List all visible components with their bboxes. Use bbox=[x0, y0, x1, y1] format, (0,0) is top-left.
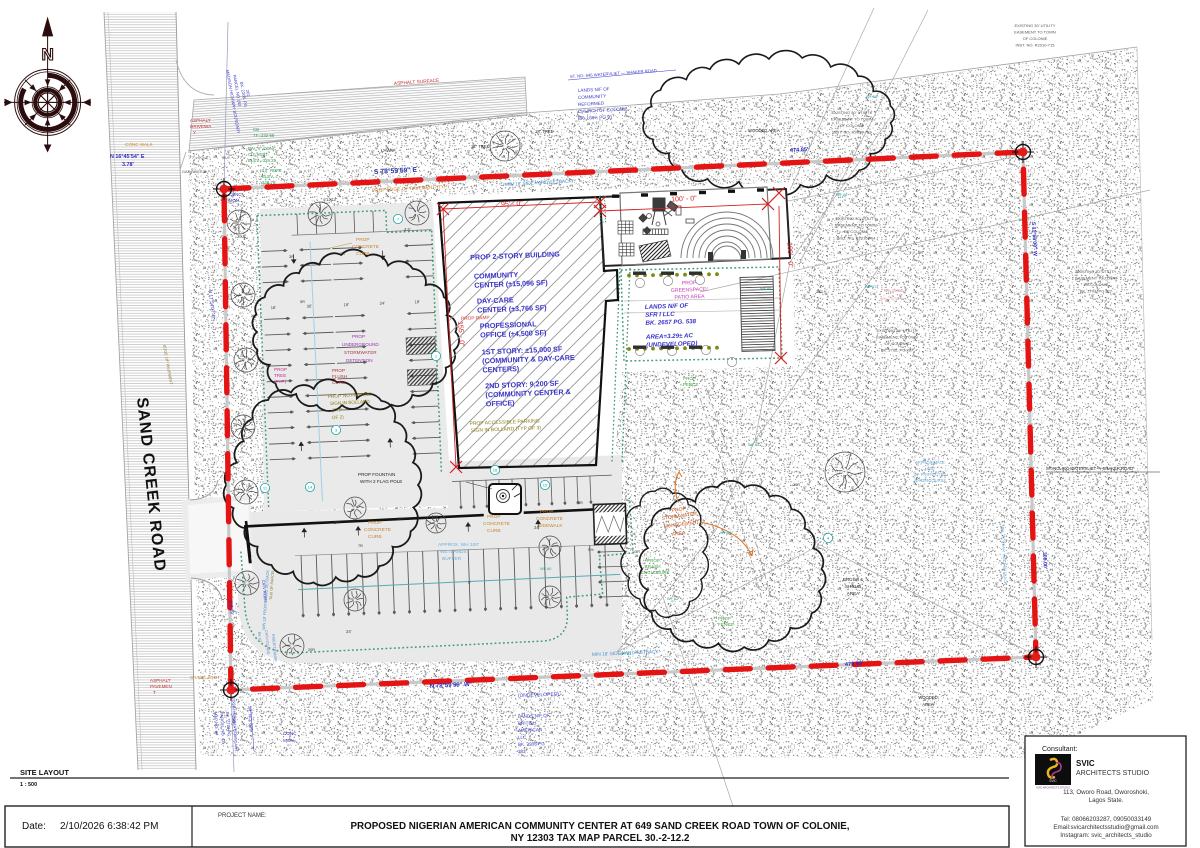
svg-text:NY 12303 TAX MAP PARCEL 30.-2-: NY 12303 TAX MAP PARCEL 30.-2-12.2 bbox=[511, 833, 690, 844]
svg-text:381: 381 bbox=[518, 749, 526, 754]
svg-text:WF A2: WF A2 bbox=[667, 597, 678, 601]
svg-text:EASEMENT TO TOWN: EASEMENT TO TOWN bbox=[876, 335, 918, 340]
svg-text:ELEV. =: ELEV. = bbox=[262, 174, 278, 179]
svg-text:TREE: TREE bbox=[274, 373, 286, 378]
svg-text:20R: 20R bbox=[793, 483, 800, 487]
svg-text:ELEV.=326.25: ELEV.=326.25 bbox=[248, 158, 277, 163]
svg-text:2/10/2026 6:38:42 PM: 2/10/2026 6:38:42 PM bbox=[60, 821, 158, 832]
svg-text:INST. NO. R2010-715: INST. NO. R2010-715 bbox=[1016, 43, 1056, 48]
svg-text:CONCRETE: CONCRETE bbox=[352, 244, 379, 250]
svg-text:WF A7: WF A7 bbox=[865, 285, 876, 289]
svg-text:PROP: PROP bbox=[540, 509, 554, 515]
svg-text:WOODED: WOODED bbox=[918, 695, 937, 700]
svg-text:BRITISH: BRITISH bbox=[518, 720, 536, 726]
svg-text:3R: 3R bbox=[635, 550, 640, 554]
svg-text:Y: Y bbox=[193, 130, 196, 135]
svg-text:EXISTING 30’ UTILITY: EXISTING 30’ UTILITY bbox=[877, 328, 918, 333]
svg-text:24': 24' bbox=[346, 629, 352, 634]
svg-text:OFFICE): OFFICE) bbox=[486, 398, 516, 408]
svg-text:BK. 2936 PG: BK. 2936 PG bbox=[518, 741, 545, 747]
svg-text:FLUSH: FLUSH bbox=[332, 374, 347, 379]
svg-text:20R: 20R bbox=[308, 648, 315, 652]
svg-text:18': 18' bbox=[343, 302, 349, 307]
svg-text:AMERICAN: AMERICAN bbox=[518, 727, 542, 733]
svg-text:BK. 2702, PG 227: BK. 2702, PG 227 bbox=[1080, 289, 1113, 294]
svg-text:24': 24' bbox=[534, 525, 540, 530]
svg-text:474.85': 474.85' bbox=[790, 147, 809, 154]
svg-text:MON.: MON. bbox=[229, 198, 240, 203]
svg-text:4.5': 4.5' bbox=[404, 227, 411, 232]
svg-text:EXISTING 30’ UTILITY: EXISTING 30’ UTILITY bbox=[1076, 269, 1117, 274]
svg-text:BUFFER: BUFFER bbox=[442, 556, 462, 562]
svg-text:AREA: AREA bbox=[922, 702, 934, 707]
svg-text:WH-25985: WH-25985 bbox=[884, 288, 904, 293]
svg-text:WOODED AREA: WOODED AREA bbox=[748, 128, 780, 133]
svg-text:ARCHITECTS STUDIO: ARCHITECTS STUDIO bbox=[1076, 770, 1150, 777]
svg-text:CONCRETE: CONCRETE bbox=[536, 516, 563, 522]
svg-text:95' - 0": 95' - 0" bbox=[501, 201, 524, 209]
svg-text:6" CONC: 6" CONC bbox=[258, 146, 276, 151]
svg-text:WF A6: WF A6 bbox=[836, 193, 847, 197]
svg-text:CURB: CURB bbox=[368, 534, 382, 540]
svg-text:20.8': 20.8' bbox=[237, 234, 246, 239]
svg-text:EXISTING 30’ UTILITY: EXISTING 30’ UTILITY bbox=[832, 110, 873, 115]
svg-text:WF A5: WF A5 bbox=[760, 287, 771, 291]
svg-text:WF A0: WF A0 bbox=[540, 567, 551, 571]
svg-text:479.99': 479.99' bbox=[845, 661, 864, 668]
svg-text:WF A4: WF A4 bbox=[748, 443, 759, 447]
svg-text:CONC WALK: CONC WALK bbox=[125, 142, 154, 147]
svg-text:TF=332.58: TF=332.58 bbox=[253, 133, 275, 138]
svg-text:N 16°45'54" E: N 16°45'54" E bbox=[110, 154, 145, 160]
svg-text:PROPOSED NIGERIAN AMERICAN COM: PROPOSED NIGERIAN AMERICAN COMMUNITY CEN… bbox=[351, 821, 850, 832]
svg-text:OF PROTECTED: OF PROTECTED bbox=[914, 472, 947, 477]
svg-text:EXISTING 30’ UTILITY: EXISTING 30’ UTILITY bbox=[1015, 23, 1056, 28]
svg-text:WETLANDS: WETLANDS bbox=[440, 549, 467, 555]
svg-text:INST. NO. R2010-714: INST. NO. R2010-714 bbox=[837, 236, 877, 241]
svg-text:PROP: PROP bbox=[332, 368, 345, 373]
svg-text:UNDERGROUND: UNDERGROUND bbox=[342, 342, 379, 347]
svg-text:113, Oworo Road, Oworoshoki,: 113, Oworo Road, Oworoshoki, bbox=[1063, 789, 1149, 796]
svg-text:ASPHALT: ASPHALT bbox=[150, 678, 171, 683]
svg-text:12" TREE: 12" TREE bbox=[471, 144, 490, 149]
svg-text:CURB: CURB bbox=[487, 528, 501, 534]
svg-text:Email:svicarchitectsstudio@gma: Email:svicarchitectsstudio@gmail.com bbox=[1053, 824, 1158, 831]
svg-text:GRAVEL ARCH: GRAVEL ARCH bbox=[190, 675, 219, 680]
svg-text:PROP: PROP bbox=[352, 334, 365, 339]
svg-text:(TYP: (TYP bbox=[332, 407, 343, 413]
svg-text:EASEMENT TO TOWN: EASEMENT TO TOWN bbox=[835, 223, 877, 228]
svg-text:TRASH: TRASH bbox=[645, 564, 661, 569]
svg-text:APPROXIMATE: APPROXIMATE bbox=[915, 460, 945, 465]
svg-text:PROP: PROP bbox=[274, 367, 287, 372]
svg-text:STORMWATER: STORMWATER bbox=[344, 350, 377, 355]
svg-text:Lagos State.: Lagos State. bbox=[1089, 797, 1124, 804]
svg-text:CONC: CONC bbox=[283, 731, 297, 736]
svg-text:WH-27738: WH-27738 bbox=[880, 296, 900, 301]
svg-text:ST. NO. 900 WATERVLIET — SHAKE: ST. NO. 900 WATERVLIET — SHAKER ROAD bbox=[1046, 466, 1133, 471]
svg-text:100' - 0": 100' - 0" bbox=[786, 242, 794, 268]
svg-text:5R: 5R bbox=[300, 300, 305, 304]
svg-text:SFR I LLC: SFR I LLC bbox=[645, 311, 675, 319]
svg-text:CULVERT: CULVERT bbox=[248, 152, 268, 157]
svg-text:OF COLONIE: OF COLONIE bbox=[885, 341, 910, 346]
svg-text:SVIC: SVIC bbox=[1049, 779, 1057, 783]
svg-text:DETENTION: DETENTION bbox=[346, 358, 373, 363]
svg-text:328.79: 328.79 bbox=[262, 180, 276, 185]
svg-text:124.7': 124.7' bbox=[326, 197, 337, 202]
svg-text:PROP: PROP bbox=[683, 376, 696, 381]
svg-text:36': 36' bbox=[307, 303, 313, 308]
svg-text:WITH 2 FLAG POLE: WITH 2 FLAG POLE bbox=[360, 479, 402, 484]
svg-text:300.00': 300.00' bbox=[1041, 552, 1048, 569]
svg-text:24': 24' bbox=[379, 301, 385, 306]
svg-text:BK. 2702, PG 237: BK. 2702, PG 237 bbox=[881, 348, 914, 353]
svg-text:INST. NO. R2010-713: INST. NO. R2010-713 bbox=[833, 130, 873, 135]
svg-text:EASEMENT TO TOWN: EASEMENT TO TOWN bbox=[831, 117, 873, 122]
svg-text:3.78': 3.78' bbox=[122, 162, 134, 168]
svg-text:3R: 3R bbox=[578, 501, 583, 505]
svg-text:CURB: CURB bbox=[356, 251, 370, 257]
svg-text:PROP: PROP bbox=[356, 237, 370, 243]
svg-text:5R: 5R bbox=[397, 517, 402, 521]
svg-text:Instagram: svic_architects_stu: Instagram: svic_architects_studio bbox=[1060, 832, 1152, 839]
svg-text:AREA: AREA bbox=[847, 591, 860, 596]
svg-text:PROP FOUNTAIN: PROP FOUNTAIN bbox=[358, 472, 395, 477]
svg-text:5%: 5% bbox=[588, 548, 594, 552]
svg-text:GUY: GUY bbox=[222, 156, 231, 160]
svg-text:EASEMENT TO TOWN: EASEMENT TO TOWN bbox=[1075, 276, 1117, 281]
svg-text:CENTERS): CENTERS) bbox=[482, 364, 520, 374]
svg-text:PROP: PROP bbox=[718, 616, 731, 621]
svg-text:OF COLONIE: OF COLONIE bbox=[844, 229, 869, 234]
svg-text:14: 14 bbox=[308, 485, 313, 490]
svg-text:7R: 7R bbox=[358, 544, 363, 548]
svg-text:PROP: PROP bbox=[487, 514, 501, 520]
svg-text:PAVEMEN: PAVEMEN bbox=[150, 684, 172, 689]
svg-text:LIMIT: LIMIT bbox=[925, 466, 936, 471]
svg-text:CONCRETE: CONCRETE bbox=[364, 527, 391, 533]
svg-text:LLC: LLC bbox=[518, 735, 527, 740]
svg-text:CONCRETE: CONCRETE bbox=[483, 521, 510, 527]
svg-text:DRIVEWA: DRIVEWA bbox=[190, 124, 212, 129]
svg-text:8R: 8R bbox=[918, 251, 923, 255]
svg-text:Date:: Date: bbox=[22, 821, 46, 832]
svg-text:EASEMENT TO TOWN: EASEMENT TO TOWN bbox=[1014, 30, 1056, 35]
svg-text:SITE LAYOUT: SITE LAYOUT bbox=[20, 768, 69, 777]
svg-text:Tel: 08066203287, 09050033149: Tel: 08066203287, 09050033149 bbox=[1061, 816, 1152, 823]
svg-text:BRUSH &: BRUSH & bbox=[843, 577, 863, 582]
svg-text:Consultant:: Consultant: bbox=[1042, 746, 1077, 753]
svg-text:APPROX. WH 100': APPROX. WH 100' bbox=[438, 542, 479, 548]
svg-text:T: T bbox=[153, 690, 156, 695]
svg-text:(TYP): (TYP) bbox=[274, 379, 286, 384]
svg-text:3R: 3R bbox=[340, 252, 345, 256]
svg-text:18': 18' bbox=[271, 305, 277, 310]
svg-text:1 : 500: 1 : 500 bbox=[20, 782, 37, 788]
svg-text:WATERCOURSE: WATERCOURSE bbox=[914, 478, 947, 483]
svg-text:ASPHALT: ASPHALT bbox=[190, 118, 211, 123]
svg-text:3R: 3R bbox=[352, 518, 357, 522]
svg-text:24': 24' bbox=[334, 520, 340, 525]
svg-text:PROJECT NAME:: PROJECT NAME: bbox=[218, 813, 267, 819]
svg-text:MON.: MON. bbox=[283, 738, 295, 743]
svg-text:WF A1: WF A1 bbox=[620, 652, 631, 656]
svg-text:262 Y: 262 Y bbox=[816, 289, 827, 294]
svg-text:OF COLONIE: OF COLONIE bbox=[840, 123, 865, 128]
svg-text:WF A3: WF A3 bbox=[720, 531, 731, 535]
svg-text:SVIC: SVIC bbox=[1076, 759, 1095, 768]
svg-text:100' - 0": 100' - 0" bbox=[671, 195, 697, 203]
svg-text:CB: CB bbox=[253, 127, 259, 132]
svg-text:POLE: POLE bbox=[198, 156, 209, 160]
svg-text:PATIO AREA: PATIO AREA bbox=[674, 294, 705, 301]
svg-text:12" HDPE: 12" HDPE bbox=[262, 168, 282, 173]
svg-text:WF A8: WF A8 bbox=[866, 95, 877, 99]
svg-text:SIDEWALK: SIDEWALK bbox=[538, 523, 563, 529]
svg-text:OF COLONIE: OF COLONIE bbox=[1023, 36, 1048, 41]
svg-text:PROP: PROP bbox=[647, 558, 660, 563]
svg-text:FENCE: FENCE bbox=[718, 622, 734, 627]
svg-text:2R: 2R bbox=[683, 547, 688, 551]
svg-text:GAS RISER Ø: GAS RISER Ø bbox=[182, 170, 207, 174]
svg-text:OF COLONIE: OF COLONIE bbox=[1084, 282, 1109, 287]
svg-text:FENCE: FENCE bbox=[683, 382, 699, 387]
svg-text:EXISTING 30’ UTILITY: EXISTING 30’ UTILITY bbox=[836, 216, 877, 221]
svg-text:SHRUB: SHRUB bbox=[845, 584, 861, 589]
svg-text:PROP RAMP: PROP RAMP bbox=[461, 315, 490, 322]
svg-text:16: 16 bbox=[493, 468, 498, 473]
svg-text:CONC: CONC bbox=[229, 192, 241, 197]
svg-text:OF 2): OF 2) bbox=[332, 414, 344, 420]
svg-text:INV: INV bbox=[248, 146, 255, 151]
svg-text:N: N bbox=[41, 45, 53, 64]
svg-text:9': 9' bbox=[468, 580, 471, 585]
svg-text:LAWN: LAWN bbox=[381, 148, 394, 153]
svg-text:18': 18' bbox=[414, 299, 420, 304]
svg-text:3R: 3R bbox=[289, 255, 294, 259]
svg-text:CURB: CURB bbox=[332, 380, 345, 385]
svg-text:ENCLOSURE: ENCLOSURE bbox=[641, 570, 670, 575]
svg-text:PROP: PROP bbox=[368, 520, 382, 526]
svg-text:PROP: PROP bbox=[682, 280, 697, 287]
svg-text:5R: 5R bbox=[432, 515, 437, 519]
svg-text:18" TREE: 18" TREE bbox=[535, 129, 554, 134]
svg-text:10: 10 bbox=[543, 483, 548, 488]
